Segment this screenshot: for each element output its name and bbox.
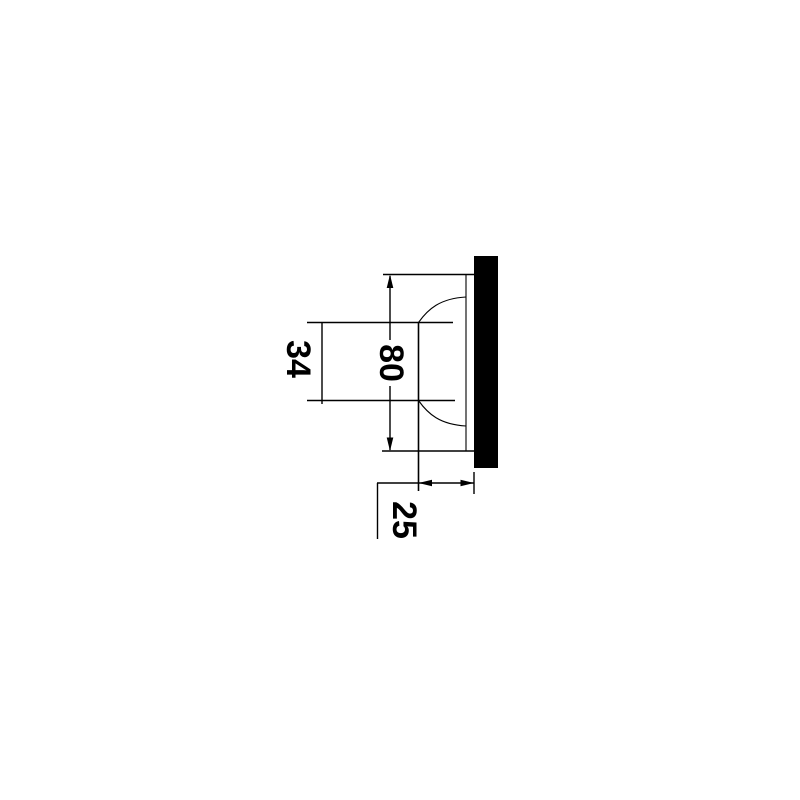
bell-curve-bottom [419,401,467,427]
dim-label-overall-height: 80 [372,344,410,382]
arrow-down-icon [387,438,394,452]
panel-bar [474,256,498,468]
arrow-up-icon [387,275,394,289]
drawing-page: 80 34 25 [0,0,800,800]
arrow-left-icon [419,480,433,487]
arrow-right-icon [461,480,475,487]
bell-curve-top [419,297,467,323]
dim-label-opening-height: 34 [279,340,317,378]
technical-drawing-canvas: 80 34 25 [0,0,800,800]
dim-label-depth: 25 [385,501,423,539]
